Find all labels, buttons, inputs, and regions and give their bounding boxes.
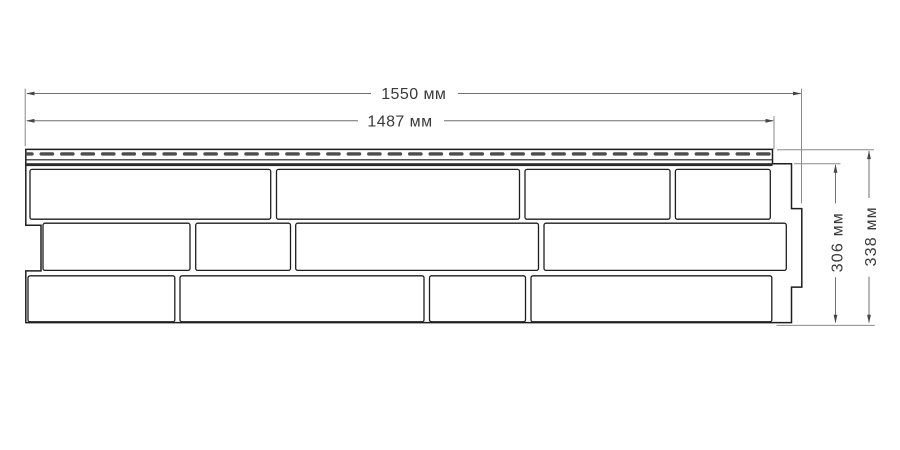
svg-text:1550 мм: 1550 мм (381, 86, 446, 103)
svg-text:1487 мм: 1487 мм (367, 113, 432, 130)
svg-text:306 мм: 306 мм (830, 212, 847, 272)
svg-text:338 мм: 338 мм (863, 206, 880, 266)
